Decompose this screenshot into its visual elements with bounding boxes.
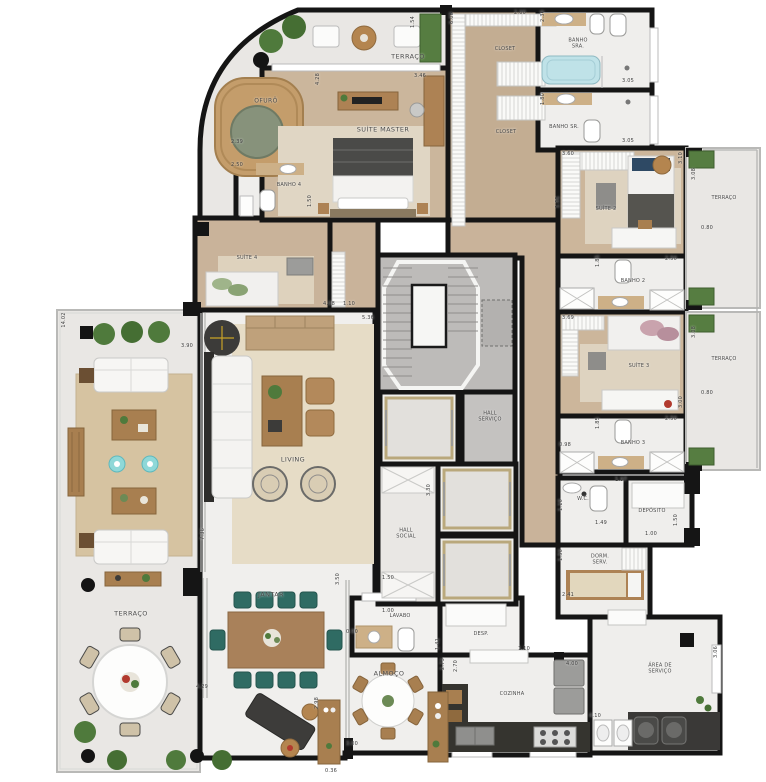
toilet [398,628,414,651]
room-label-lavabo: LAVABO [390,614,411,620]
sideboard [428,692,448,762]
dim-label: 4.10 [589,713,601,719]
desk [612,228,676,248]
dim-label: 2.98 [314,697,320,709]
dim-label: 1.80 [540,93,546,105]
room-label-jantar: JANTAR [258,591,284,598]
bidet [590,14,604,34]
dim-label: 3.05 [622,78,634,84]
dim-label: 1.85 [595,255,601,267]
room-label-banho-4: BANHO 4 [277,183,301,189]
dim-label: 1.00 [382,608,394,614]
shower-drain [625,66,630,71]
sofa-top [246,316,334,350]
dim-label: 1.54 [410,16,416,28]
room-label-banho-2: BANHO 2 [621,279,645,285]
side-table [653,156,671,174]
pouf [588,352,606,370]
room-label-terraco-top: TERRAÇO [391,53,425,60]
room-label-banho-sr: BANHO SR. [549,125,579,131]
dim-label: 0.80 [701,225,713,231]
room-label-desp: DESP. [473,632,488,638]
entry-closet [332,252,345,307]
armch [306,410,334,436]
dim-label: 3.60 [562,151,574,157]
dim-label: 4.28 [315,73,321,85]
room-label-terraco-right-upper: TERRAÇO [711,196,736,202]
dim-label: 0.36 [325,768,337,774]
fridge [554,688,584,714]
dim-label: 3.50 [335,573,341,585]
dim-label: 5.36 [362,315,374,321]
dim-label: 3.10 [678,152,684,164]
console [105,572,161,586]
dim-label: 3.00 [678,396,684,408]
dim-label: 1.97 [615,477,627,483]
toilet [260,190,275,211]
dim-label: 1.41 [435,638,441,650]
dim-label: 1.00 [645,531,657,537]
terrace-right-upper-floor [686,148,760,308]
shaft-machine-area [482,300,512,346]
dim-label: 2.73 [440,658,446,670]
armch [306,378,334,404]
pillows [338,198,408,209]
shelf [632,483,684,508]
room-label-banho-sra: BANHO SRA. [563,38,593,50]
floor-plan: TERRAÇO OFURÔ SUÍTE MASTER BANHO 4 SUÍTE… [0,0,766,782]
room-label-dorm-serv: DORM. SERV. [585,554,615,566]
dim-label: 3.08 [691,326,697,338]
dim-label: 1.49 [595,520,607,526]
room-label-living: LIVING [281,456,305,463]
dim-label: 3.00 [346,741,358,747]
room-label-area-servico: ÁREA DE SERVIÇO [642,663,678,675]
room-label-almoco: ALMOÇO [374,670,405,677]
coffee-table [112,410,156,440]
dim-label: 2.30 [540,10,546,22]
toilet [584,120,600,142]
room-label-banho-3: BANHO 3 [621,441,645,447]
dim-label: 2.39 [231,139,243,145]
pouf [596,183,616,209]
dim-label: 4.00 [566,661,578,667]
lounge-chair [313,26,339,47]
dim-label: 1.91 [555,196,561,208]
sofa-white [212,356,252,498]
dim-label: 2.50 [665,256,677,262]
dim-label: 1.50 [307,195,313,207]
room-label-ofuro: OFURÔ [254,99,277,106]
vanity-desk [424,76,444,146]
laptop [352,97,382,104]
room-label-terraco-right-lower: TERRAÇO [711,357,736,363]
chair [638,220,652,229]
living-rug [232,324,374,564]
rattan-chair [253,467,287,501]
bench [68,428,84,496]
outdoor-rug [76,374,192,556]
toilet [590,486,607,511]
coffee-table [112,488,156,514]
dim-label: 3.30 [426,484,432,496]
dim-label: 1.50 [382,575,394,581]
dim-label: 1.10 [558,499,564,511]
dim-label: 2.50 [665,416,677,422]
stair-void [412,285,446,347]
room-label-suite-3: SUÍTE 3 [629,364,650,370]
bed-blanket [333,138,413,176]
dim-label: 7.36 [200,528,206,540]
room-label-cozinha: COZINHA [500,692,525,698]
dim-label: 4.29 [196,684,208,690]
lounge-chair [394,26,420,47]
rattan-chair [301,467,335,501]
dim-label: 1.50 [558,549,564,561]
room-label-closet-upper: CLOSET [495,47,516,53]
room-label-hall-social: HALL SOCIAL [391,528,421,540]
coffee-table [262,376,302,446]
dim-label: 3.69 [562,315,574,321]
dim-label: 0.80 [701,390,713,396]
shower-drain [626,100,631,105]
dim-label: 6.08 [449,12,455,24]
dim-label: 3.90 [181,343,193,349]
dim-label: 3.05 [622,138,634,144]
ottoman [287,258,313,275]
dim-label: 1.50 [673,514,679,526]
spot-light [253,52,269,68]
pantry-shelf [446,604,506,626]
bar-cabinet [318,700,340,764]
headboard [330,209,416,217]
dim-label: 14.02 [61,312,67,327]
terrace-right-lower-floor [686,312,760,470]
dim-label: 3.08 [691,168,697,180]
room-label-suite-master: SUÍTE MASTER [357,126,410,133]
dim-label: 2.41 [562,592,574,598]
room-label-deposito: DEPÓSITO [638,509,665,515]
sink [280,165,296,174]
dim-label: 2.70 [453,660,459,672]
dim-label: 2.00 [514,10,526,16]
room-label-suite-2: SUÍTE 2 [596,207,617,213]
room-label-closet-lower: CLOSET [496,130,517,136]
hall-servico-floor [462,392,515,464]
dim-label: 1.10 [343,301,355,307]
dim-label: 0.90 [346,629,358,635]
room-label-hall-servico: HALL SERVIÇO [472,411,508,423]
dim-label: 4.08 [323,301,335,307]
red-lamp [664,400,672,408]
dim-label: 3.46 [414,73,426,79]
dim-label: 3.06 [713,646,719,658]
toilet [610,14,626,36]
room-label-wc: W.C. [577,497,589,503]
dim-label: 2.50 [231,162,243,168]
room-label-terraco-left: TERRAÇO [114,610,148,617]
room-label-suite-4: SUÍTE 4 [237,256,258,262]
dim-label: 0.98 [559,442,571,448]
dim-label: 1.85 [595,417,601,429]
dim-label: 1.10 [518,646,530,652]
